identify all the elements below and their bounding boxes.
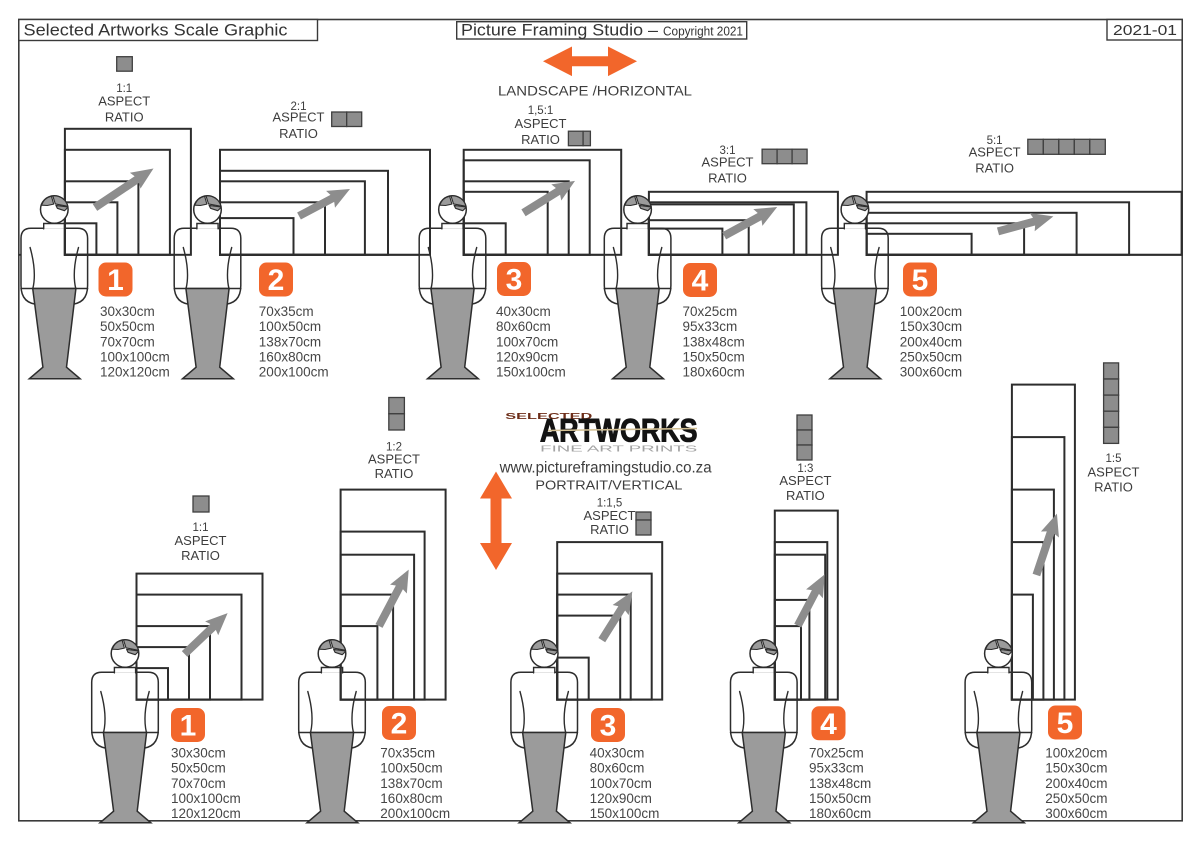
svg-text:80x60cm: 80x60cm bbox=[496, 319, 551, 334]
svg-text:ASPECT: ASPECT bbox=[701, 155, 753, 170]
svg-text:150x100cm: 150x100cm bbox=[496, 365, 566, 380]
svg-text:RATIO: RATIO bbox=[181, 548, 220, 563]
svg-text:5: 5 bbox=[912, 264, 929, 297]
svg-text:30x30cm: 30x30cm bbox=[171, 746, 226, 761]
svg-text:1: 1 bbox=[107, 264, 124, 297]
svg-text:40x30cm: 40x30cm bbox=[496, 304, 551, 319]
svg-text:Selected Artworks Scale Graphi: Selected Artworks Scale Graphic bbox=[24, 22, 288, 40]
svg-text:5: 5 bbox=[1057, 707, 1074, 740]
svg-text:RATIO: RATIO bbox=[590, 522, 629, 537]
svg-text:138x48cm: 138x48cm bbox=[809, 776, 871, 791]
svg-text:200x100cm: 200x100cm bbox=[259, 365, 329, 380]
svg-text:FINE ART PRINTS: FINE ART PRINTS bbox=[540, 444, 698, 454]
svg-text:160x80cm: 160x80cm bbox=[259, 349, 321, 364]
svg-text:300x60cm: 300x60cm bbox=[1045, 806, 1107, 821]
svg-text:RATIO: RATIO bbox=[786, 488, 825, 503]
svg-text:ASPECT: ASPECT bbox=[969, 145, 1021, 160]
svg-text:3: 3 bbox=[506, 264, 523, 297]
svg-text:150x30cm: 150x30cm bbox=[900, 319, 962, 334]
svg-text:250x50cm: 250x50cm bbox=[1045, 791, 1107, 806]
svg-text:70x70cm: 70x70cm bbox=[171, 776, 226, 791]
svg-text:ASPECT: ASPECT bbox=[98, 94, 150, 109]
svg-text:100x50cm: 100x50cm bbox=[259, 319, 321, 334]
svg-text:2021-01: 2021-01 bbox=[1113, 23, 1177, 39]
svg-text:ASPECT: ASPECT bbox=[514, 116, 566, 131]
svg-text:70x35cm: 70x35cm bbox=[259, 304, 314, 319]
svg-text:ASPECT: ASPECT bbox=[174, 533, 226, 548]
svg-text:PORTRAIT/VERTICAL: PORTRAIT/VERTICAL bbox=[535, 479, 682, 493]
svg-text:100x70cm: 100x70cm bbox=[590, 776, 652, 791]
svg-text:100x20cm: 100x20cm bbox=[900, 304, 962, 319]
svg-text:RATIO: RATIO bbox=[1094, 479, 1133, 494]
svg-text:95x33cm: 95x33cm bbox=[809, 761, 864, 776]
svg-text:150x30cm: 150x30cm bbox=[1045, 761, 1107, 776]
svg-text:95x33cm: 95x33cm bbox=[683, 319, 738, 334]
svg-text:Copyright 2021: Copyright 2021 bbox=[663, 25, 743, 39]
svg-text:100x100cm: 100x100cm bbox=[100, 349, 170, 364]
svg-text:80x60cm: 80x60cm bbox=[590, 761, 645, 776]
svg-text:180x60cm: 180x60cm bbox=[809, 806, 871, 821]
svg-text:4: 4 bbox=[820, 708, 837, 741]
svg-text:150x50cm: 150x50cm bbox=[809, 791, 871, 806]
svg-text:RATIO: RATIO bbox=[279, 126, 318, 141]
svg-text:50x50cm: 50x50cm bbox=[171, 761, 226, 776]
svg-text:4: 4 bbox=[692, 265, 709, 298]
svg-text:150x100cm: 150x100cm bbox=[590, 806, 660, 821]
svg-text:RATIO: RATIO bbox=[375, 466, 414, 481]
svg-text:ASPECT: ASPECT bbox=[272, 110, 324, 125]
svg-text:RATIO: RATIO bbox=[105, 110, 144, 125]
svg-text:100x100cm: 100x100cm bbox=[171, 791, 241, 806]
svg-text:ASPECT: ASPECT bbox=[1087, 465, 1139, 480]
svg-text:RATIO: RATIO bbox=[521, 132, 560, 147]
svg-text:ASPECT: ASPECT bbox=[779, 473, 831, 488]
svg-text:200x40cm: 200x40cm bbox=[1045, 776, 1107, 791]
svg-text:RATIO: RATIO bbox=[975, 161, 1014, 176]
svg-text:70x70cm: 70x70cm bbox=[100, 334, 155, 349]
svg-text:300x60cm: 300x60cm bbox=[900, 365, 962, 380]
svg-text:LANDSCAPE /HORIZONTAL: LANDSCAPE /HORIZONTAL bbox=[498, 83, 692, 99]
svg-text:70x25cm: 70x25cm bbox=[809, 746, 864, 761]
svg-text:www.pictureframingstudio.co.za: www.pictureframingstudio.co.za bbox=[499, 460, 712, 477]
svg-text:138x70cm: 138x70cm bbox=[259, 334, 321, 349]
svg-text:1:5: 1:5 bbox=[1106, 453, 1122, 465]
svg-text:120x120cm: 120x120cm bbox=[171, 806, 241, 821]
svg-text:RATIO: RATIO bbox=[708, 171, 747, 186]
svg-text:138x48cm: 138x48cm bbox=[683, 334, 745, 349]
svg-text:120x90cm: 120x90cm bbox=[496, 349, 558, 364]
svg-text:100x70cm: 100x70cm bbox=[496, 334, 558, 349]
svg-text:180x60cm: 180x60cm bbox=[683, 365, 745, 380]
svg-text:200x100cm: 200x100cm bbox=[380, 806, 450, 821]
svg-text:Picture Framing Studio –: Picture Framing Studio – bbox=[461, 22, 659, 40]
svg-text:138x70cm: 138x70cm bbox=[380, 776, 442, 791]
svg-text:200x40cm: 200x40cm bbox=[900, 334, 962, 349]
svg-text:100x50cm: 100x50cm bbox=[380, 761, 442, 776]
svg-text:50x50cm: 50x50cm bbox=[100, 319, 155, 334]
svg-text:40x30cm: 40x30cm bbox=[590, 746, 645, 761]
svg-text:120x120cm: 120x120cm bbox=[100, 365, 170, 380]
svg-text:100x20cm: 100x20cm bbox=[1045, 746, 1107, 761]
svg-text:70x35cm: 70x35cm bbox=[380, 746, 435, 761]
svg-text:3: 3 bbox=[600, 710, 617, 743]
svg-text:2: 2 bbox=[268, 264, 285, 297]
svg-text:150x50cm: 150x50cm bbox=[683, 349, 745, 364]
svg-text:250x50cm: 250x50cm bbox=[900, 349, 962, 364]
svg-text:1: 1 bbox=[180, 710, 197, 743]
svg-text:ASPECT: ASPECT bbox=[583, 508, 635, 523]
svg-text:ASPECT: ASPECT bbox=[368, 452, 420, 467]
svg-text:2: 2 bbox=[391, 708, 408, 741]
svg-text:160x80cm: 160x80cm bbox=[380, 791, 442, 806]
svg-text:120x90cm: 120x90cm bbox=[590, 791, 652, 806]
svg-text:70x25cm: 70x25cm bbox=[683, 304, 738, 319]
svg-text:30x30cm: 30x30cm bbox=[100, 304, 155, 319]
